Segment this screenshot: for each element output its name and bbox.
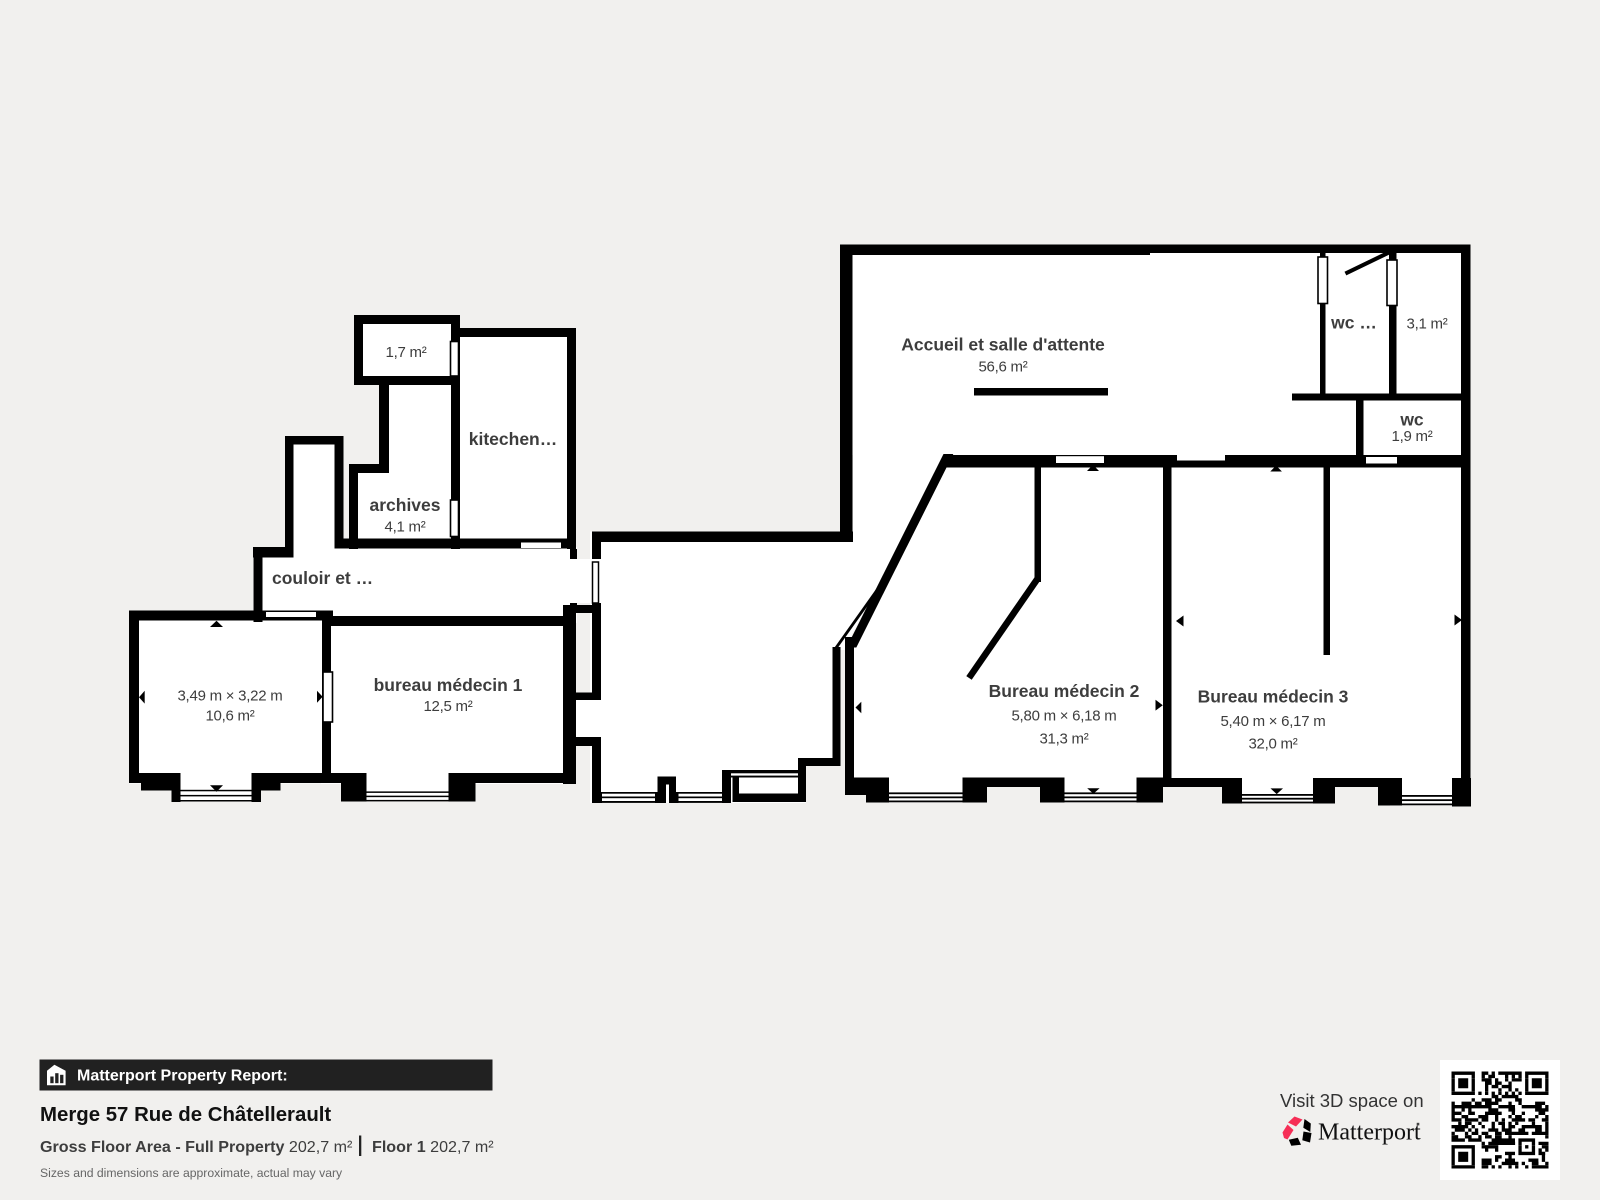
svg-text:10,6 m²: 10,6 m² xyxy=(205,708,254,725)
svg-text:archives: archives xyxy=(369,495,440,515)
svg-text:5,80 m × 6,18 m: 5,80 m × 6,18 m xyxy=(1011,708,1116,725)
svg-text:wc …: wc … xyxy=(1330,312,1377,332)
svg-text:Visit 3D space on: Visit 3D space on xyxy=(1280,1090,1424,1111)
svg-text:Merge 57 Rue de Châtellerault: Merge 57 Rue de Châtellerault xyxy=(40,1104,331,1126)
svg-text:Bureau médecin 3: Bureau médecin 3 xyxy=(1198,687,1349,707)
svg-text:3,49 m × 3,22 m: 3,49 m × 3,22 m xyxy=(177,688,282,705)
svg-text:couloir et …: couloir et … xyxy=(272,568,373,588)
svg-text:3,1 m²: 3,1 m² xyxy=(1406,316,1447,333)
svg-text:1,7 m²: 1,7 m² xyxy=(385,344,426,361)
svg-text:31,3 m²: 31,3 m² xyxy=(1039,731,1088,748)
svg-text:32,0 m²: 32,0 m² xyxy=(1248,736,1297,753)
svg-text:kitechen…: kitechen… xyxy=(469,429,558,449)
svg-text:Sizes and dimensions are appro: Sizes and dimensions are approximate, ac… xyxy=(40,1166,343,1180)
svg-text:Bureau médecin 2: Bureau médecin 2 xyxy=(989,681,1140,701)
svg-text:Matterport Property Report:: Matterport Property Report: xyxy=(77,1068,288,1085)
svg-text:56,6 m²: 56,6 m² xyxy=(978,359,1027,376)
svg-text:4,1 m²: 4,1 m² xyxy=(384,519,425,536)
svg-text:Accueil et salle d'attente: Accueil et salle d'attente xyxy=(901,335,1105,355)
svg-text:12,5 m²: 12,5 m² xyxy=(423,698,472,715)
svg-text:Matterport: Matterport xyxy=(1318,1120,1421,1146)
svg-text:1,9 m²: 1,9 m² xyxy=(1391,428,1432,445)
svg-text:Gross Floor Area - Full Proper: Gross Floor Area - Full Property 202,7 m… xyxy=(40,1138,353,1156)
svg-text:Floor 1 202,7 m²: Floor 1 202,7 m² xyxy=(372,1138,494,1156)
svg-text:5,40 m × 6,17 m: 5,40 m × 6,17 m xyxy=(1220,713,1325,730)
svg-text:wc: wc xyxy=(1399,410,1424,430)
svg-text:bureau médecin 1: bureau médecin 1 xyxy=(374,675,523,695)
